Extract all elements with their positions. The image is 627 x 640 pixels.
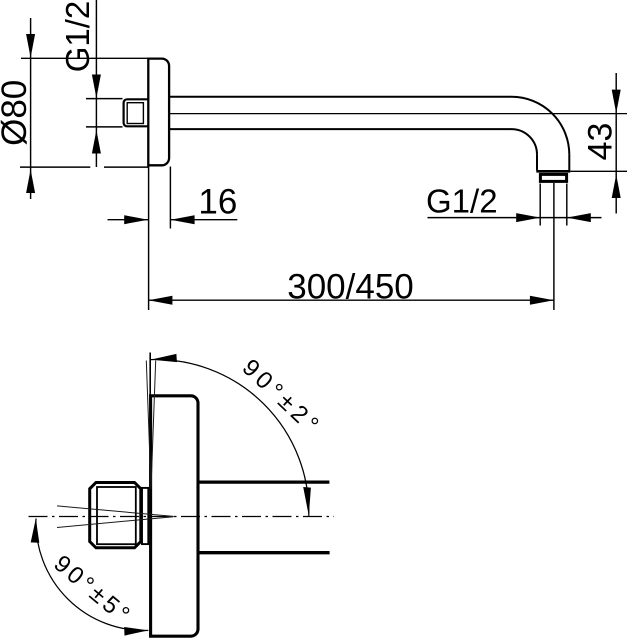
svg-text:43: 43 (582, 123, 620, 161)
svg-text:16: 16 (198, 183, 237, 222)
svg-text:Ø80: Ø80 (0, 80, 34, 146)
svg-text:300/450: 300/450 (287, 268, 414, 307)
svg-text:G1/2: G1/2 (426, 183, 498, 220)
svg-text:G1/2: G1/2 (59, 1, 96, 73)
